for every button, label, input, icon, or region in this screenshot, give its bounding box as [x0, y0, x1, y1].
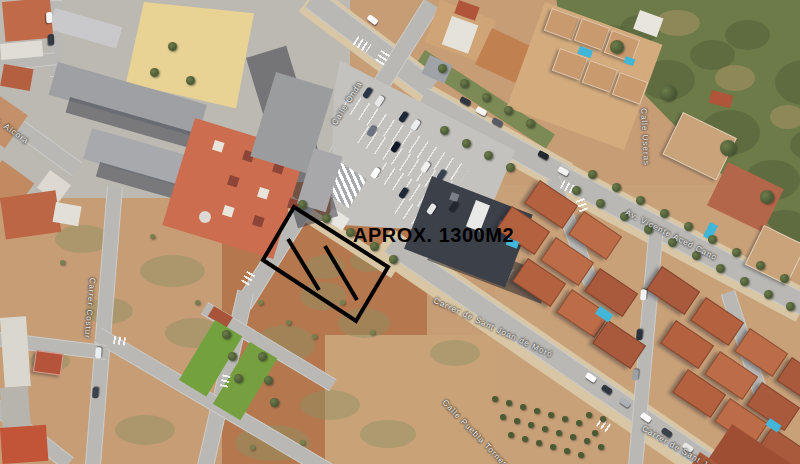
tree: [684, 222, 693, 231]
tree: [322, 214, 331, 223]
field-bare-patch: [715, 65, 755, 91]
tree: [300, 440, 305, 445]
building: [0, 190, 61, 239]
field-bare-patch: [770, 105, 800, 129]
tree: [550, 444, 556, 450]
scrub-patch: [115, 415, 175, 445]
tree: [596, 199, 605, 208]
tree: [60, 260, 65, 265]
satellite-map: Calle OndaCarrer CosturAv. Vicente Aced …: [0, 0, 800, 464]
building: [33, 350, 64, 376]
tree: [270, 398, 279, 407]
tree: [186, 76, 195, 85]
tree: [264, 376, 273, 385]
tree: [168, 42, 177, 51]
tree: [556, 430, 562, 436]
tree: [578, 452, 584, 458]
tree: [150, 234, 155, 239]
tree: [636, 196, 645, 205]
tree: [692, 251, 701, 260]
building: [53, 202, 82, 226]
tree: [720, 140, 736, 156]
tree: [389, 255, 398, 264]
scrub-patch: [300, 282, 346, 310]
car: [46, 12, 52, 23]
car: [48, 34, 54, 45]
tree: [492, 396, 498, 402]
tree: [258, 352, 267, 361]
tree: [462, 139, 471, 148]
scrub-patch: [300, 390, 360, 420]
tree: [570, 434, 576, 440]
tree: [522, 436, 528, 442]
car: [92, 387, 99, 398]
tree: [588, 170, 597, 179]
tree: [440, 126, 449, 135]
tree: [506, 163, 515, 172]
tree: [250, 445, 255, 450]
tree: [598, 444, 604, 450]
tree: [460, 79, 469, 88]
tree: [508, 432, 514, 438]
field-vegetation: [725, 20, 770, 50]
dome: [199, 211, 211, 223]
tree: [286, 320, 291, 325]
street-label-calle-useras: Calle Useras: [639, 108, 651, 166]
tree: [562, 416, 568, 422]
building: [0, 386, 31, 428]
tree: [644, 225, 653, 234]
tree: [482, 93, 491, 102]
tree: [620, 212, 629, 221]
tree: [536, 440, 542, 446]
scrub-patch: [360, 420, 416, 448]
tree: [756, 261, 765, 270]
car: [95, 347, 102, 358]
tree: [660, 209, 669, 218]
tree: [600, 416, 606, 422]
tree: [228, 352, 237, 361]
tree: [576, 420, 582, 426]
tree: [528, 422, 534, 428]
tree: [500, 414, 506, 420]
area-annotation: APROX. 1300M2: [353, 224, 514, 247]
scrub-patch: [305, 255, 345, 279]
scrub-patch: [338, 308, 390, 338]
building: [0, 425, 48, 464]
tree: [534, 408, 540, 414]
tree: [222, 330, 231, 339]
tree: [506, 400, 512, 406]
tree: [764, 290, 773, 299]
tree: [740, 277, 749, 286]
car: [636, 329, 643, 340]
tree: [592, 430, 598, 436]
tree: [572, 186, 581, 195]
car: [632, 369, 639, 380]
tree: [780, 274, 789, 283]
tree: [312, 334, 317, 339]
tree: [668, 238, 677, 247]
tree: [786, 302, 795, 311]
tree: [548, 412, 554, 418]
tree: [612, 183, 621, 192]
tree: [520, 404, 526, 410]
tree: [708, 235, 717, 244]
tree: [298, 200, 307, 209]
tree: [716, 264, 725, 273]
tree: [526, 119, 535, 128]
tree: [484, 151, 493, 160]
tree: [514, 418, 520, 424]
tree: [234, 374, 243, 383]
crosswalk: [113, 336, 126, 345]
tree: [564, 448, 570, 454]
tree: [370, 330, 375, 335]
tree: [542, 426, 548, 432]
tree: [586, 412, 592, 418]
scrub-patch: [430, 340, 480, 366]
tree: [438, 64, 447, 73]
tree: [760, 190, 774, 204]
scrub-patch: [140, 255, 205, 287]
tree: [258, 300, 263, 305]
tree: [584, 438, 590, 444]
car: [640, 289, 647, 300]
tree: [504, 106, 513, 115]
tree: [610, 40, 624, 54]
tree: [195, 300, 200, 305]
tree: [732, 248, 741, 257]
tree: [340, 300, 345, 305]
tree: [660, 85, 676, 101]
tree: [150, 68, 159, 77]
building: [0, 316, 31, 388]
